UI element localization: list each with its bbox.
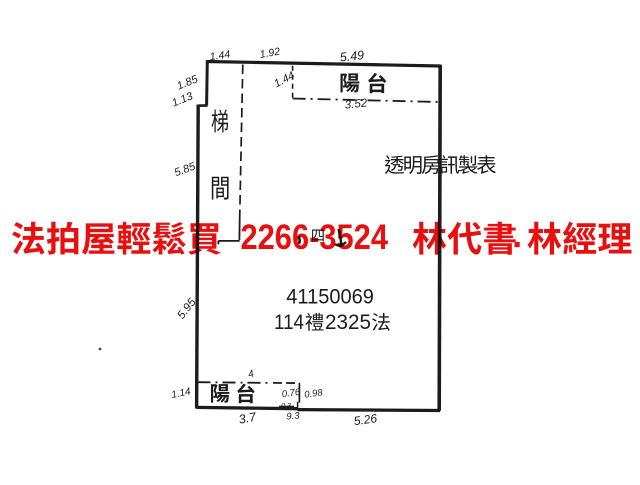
svg-text:114: 114 <box>274 311 304 334</box>
svg-text:3.52: 3.52 <box>344 97 368 111</box>
svg-text:0.3: 0.3 <box>281 403 291 410</box>
svg-text:5.49: 5.49 <box>339 48 365 64</box>
svg-text:9.3: 9.3 <box>286 411 301 423</box>
svg-text:2266-3524: 2266-3524 <box>241 218 389 257</box>
svg-text:41150069: 41150069 <box>286 286 374 309</box>
svg-text:2325: 2325 <box>325 311 371 334</box>
